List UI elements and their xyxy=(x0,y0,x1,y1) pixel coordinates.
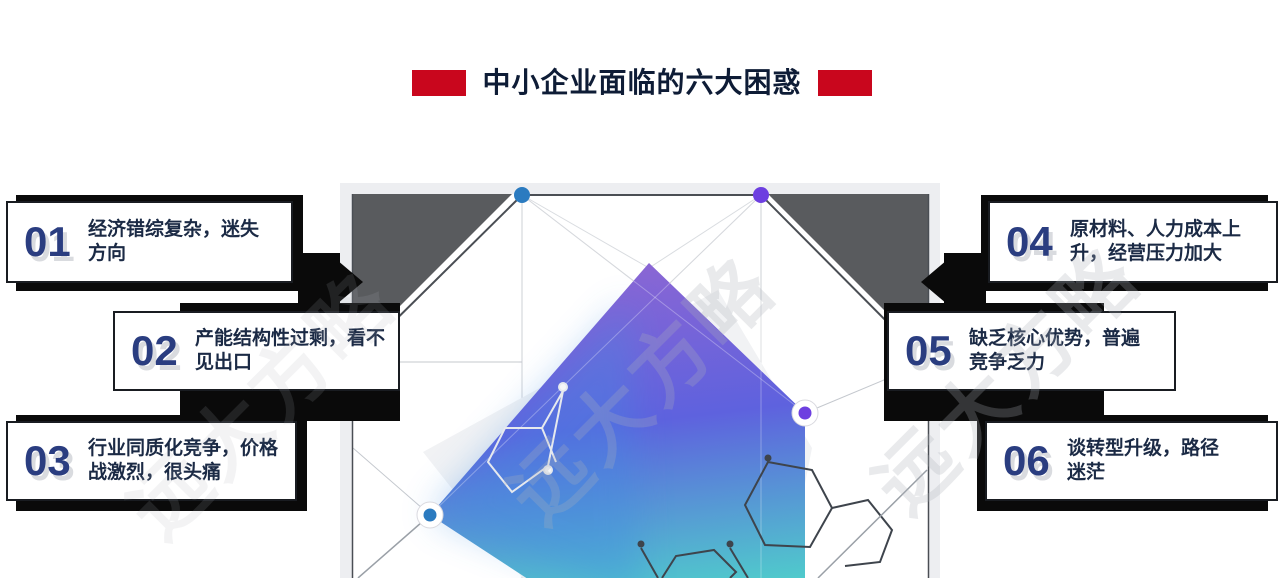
card-text: 经济错综复杂，迷失方向 xyxy=(88,218,270,266)
card-05: 05 缺乏核心优势，普遍竞争乏力 xyxy=(887,311,1176,391)
card-text: 行业同质化竞争，价格战激烈，很头痛 xyxy=(88,437,295,485)
title-row: 中小企业面临的六大困惑 xyxy=(0,68,1284,98)
card-text: 谈转型升级，路径迷茫 xyxy=(1067,437,1235,485)
card-text: 缺乏核心优势，普遍竞争乏力 xyxy=(969,327,1151,375)
card-06: 06 谈转型升级，路径迷茫 xyxy=(985,421,1278,501)
node-dot-blue xyxy=(514,187,530,203)
infographic-stage: 中小企业面临的六大困惑 01 经济错综复杂，迷失方向 02 产能结构性过剩，看不… xyxy=(0,0,1284,578)
card-text: 原材料、人力成本上升，经营压力加大 xyxy=(1070,218,1276,266)
card-number: 04 xyxy=(1006,221,1070,263)
card-number: 02 xyxy=(131,330,195,372)
card-shadow xyxy=(944,253,986,305)
card-01: 01 经济错综复杂，迷失方向 xyxy=(6,201,293,283)
card-number: 05 xyxy=(905,330,969,372)
card-number: 03 xyxy=(24,440,88,482)
page-title: 中小企业面临的六大困惑 xyxy=(482,68,801,98)
card-shadow xyxy=(298,253,340,305)
card-text: 产能结构性过剩，看不见出口 xyxy=(195,327,391,375)
card-02: 02 产能结构性过剩，看不见出口 xyxy=(113,311,400,391)
card-number: 06 xyxy=(1003,440,1067,482)
card-04: 04 原材料、人力成本上升，经营压力加大 xyxy=(988,201,1278,283)
node-ring-purple xyxy=(792,400,818,426)
node-ring-blue xyxy=(417,502,443,528)
title-accent-right xyxy=(818,70,872,96)
arrow-right-icon xyxy=(337,260,363,304)
card-03: 03 行业同质化竞争，价格战激烈，很头痛 xyxy=(6,421,297,501)
node-dot-purple xyxy=(753,187,769,203)
card-number: 01 xyxy=(24,221,88,263)
arrow-left-icon xyxy=(921,260,947,304)
title-accent-left xyxy=(412,70,466,96)
